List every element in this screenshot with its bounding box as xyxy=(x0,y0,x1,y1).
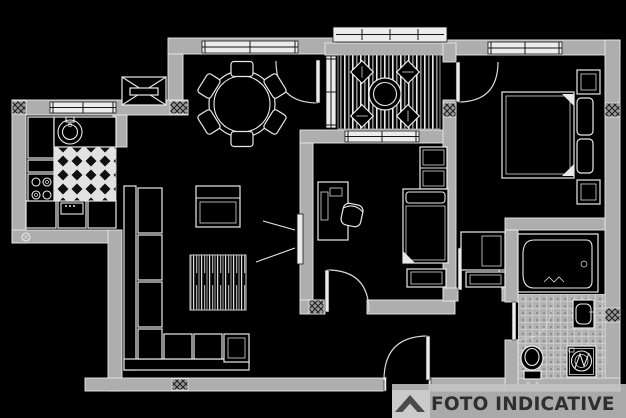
balcony-table xyxy=(369,78,401,110)
pillow xyxy=(577,98,593,135)
chair xyxy=(231,132,253,147)
double-bed xyxy=(502,92,593,178)
pillar-kitchen-window-end xyxy=(12,101,26,114)
vanity-sink xyxy=(573,300,594,328)
wall-top-balcony xyxy=(325,43,455,55)
kitchen-counter-small xyxy=(28,160,54,172)
pillar-balcony-bedroom1 xyxy=(443,103,456,117)
kitchen-sink xyxy=(54,117,116,147)
window-bedroom1 xyxy=(488,42,562,54)
balcony-planter-rail xyxy=(333,27,447,42)
bathtub xyxy=(518,234,598,292)
wall-dining-left xyxy=(168,54,183,102)
wall-living-left xyxy=(108,230,122,391)
coffee-table xyxy=(196,186,240,227)
closet xyxy=(420,147,447,189)
single-bed xyxy=(403,189,448,263)
window-dining-balcony-glazing xyxy=(326,56,336,128)
window-bedroom2-balcony xyxy=(345,131,419,142)
toilet xyxy=(521,346,543,385)
bathroom xyxy=(518,234,605,385)
nightstand xyxy=(577,180,600,204)
ac-unit xyxy=(122,77,166,105)
wall-bathroom-left-b xyxy=(505,340,518,391)
dresser xyxy=(461,232,505,270)
wall-kitchen-left xyxy=(12,100,26,243)
pillar-bottom-wall xyxy=(172,379,188,390)
kitchen-counter xyxy=(28,117,54,158)
watermark-text: FOTO INDICATIVE xyxy=(431,394,615,415)
kitchen-base-cabinet xyxy=(88,201,116,228)
bench xyxy=(466,272,505,287)
wall-right xyxy=(605,40,620,391)
wall-bedroom2-bottom-b xyxy=(367,300,455,314)
pillow xyxy=(577,139,593,173)
wall-kitchen-bottom xyxy=(12,230,120,243)
wall-bathroom-top xyxy=(505,218,605,230)
window-kitchen xyxy=(50,102,116,113)
rug xyxy=(190,255,246,310)
pillar-right-bath xyxy=(605,308,620,322)
microwave xyxy=(58,201,86,228)
nightstand xyxy=(577,70,600,94)
kitchen-base-cabinet xyxy=(26,201,56,228)
balcony xyxy=(338,55,440,129)
chair xyxy=(231,62,253,77)
kitchen xyxy=(22,117,116,241)
wall-bedroom1-left-a xyxy=(443,43,456,62)
wall-bedroom1-bottom-a xyxy=(443,288,458,301)
watermark: FOTO INDICATIVE xyxy=(392,384,626,418)
desk-chair xyxy=(340,202,364,228)
pillar-kitchen-dining xyxy=(170,101,188,114)
kitchen-tile-floor xyxy=(54,147,116,201)
pillar-bedroom2-door xyxy=(309,300,324,314)
stove xyxy=(28,174,54,202)
wall-bottom-left xyxy=(85,378,385,391)
window-dining xyxy=(202,41,298,53)
wall-bathroom-left-a xyxy=(505,230,518,302)
pillar-right-top xyxy=(605,103,620,117)
bedside-table xyxy=(407,269,446,287)
washing-machine xyxy=(567,346,596,377)
floorplan-image: FOTO INDICATIVE xyxy=(0,0,626,418)
